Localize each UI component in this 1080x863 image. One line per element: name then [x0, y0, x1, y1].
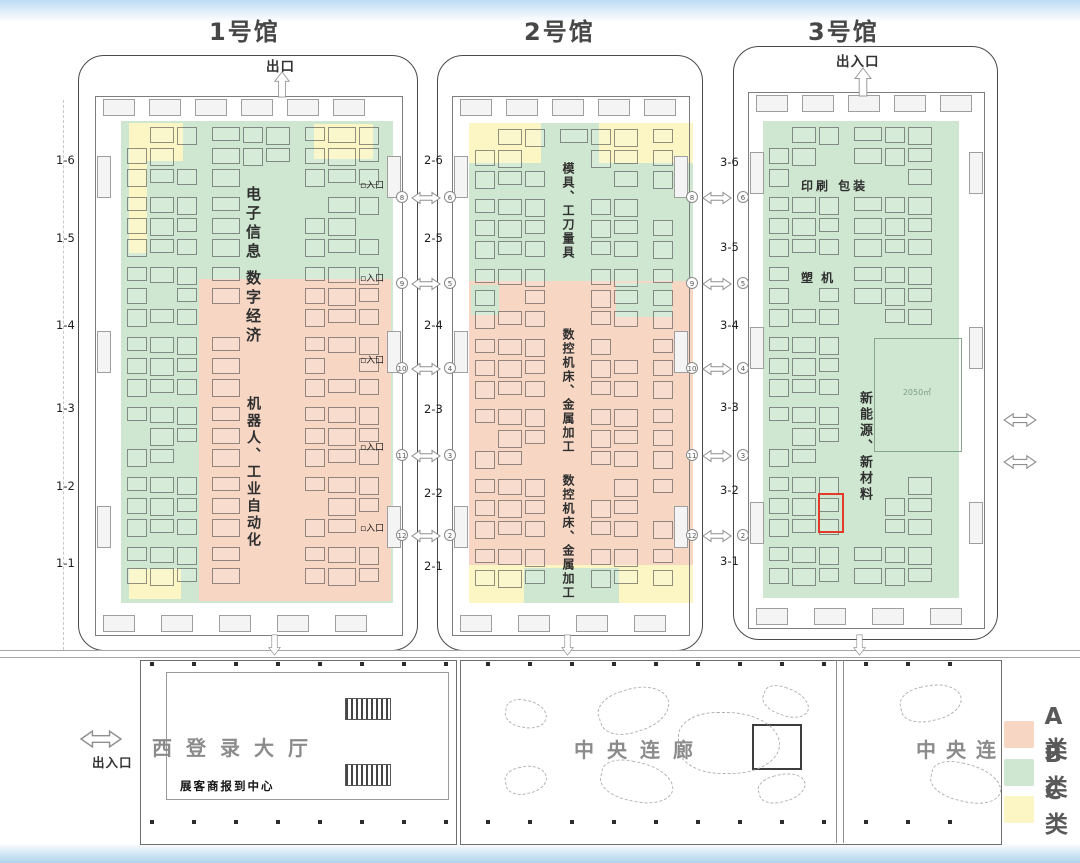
service-room-bottom: [277, 615, 309, 632]
booth-cell: [212, 127, 240, 141]
hall3-zone-label-printing-packaging: 印刷 包装: [801, 177, 868, 194]
booth-cell: [359, 477, 379, 495]
booth-cell: [525, 220, 545, 234]
booth-cell: [305, 267, 325, 281]
booth-cell: [854, 547, 882, 561]
service-room-top: [552, 99, 584, 116]
service-room-bottom: [756, 608, 788, 625]
booth-cell: [614, 451, 638, 467]
booth-cell: [525, 129, 545, 147]
service-room-top: [195, 99, 227, 116]
legend-swatch-c: [1004, 796, 1034, 823]
booth-cell: [475, 339, 495, 353]
booth-cell: [305, 519, 325, 537]
booth-cell: [475, 220, 495, 236]
booth-cell: [908, 547, 932, 565]
booth-cell: [475, 409, 495, 423]
booth-cell: [591, 150, 611, 168]
booth-cell: [819, 127, 839, 145]
booth-cell: [305, 449, 325, 467]
booth-cell: [769, 547, 789, 561]
booth-cell: [614, 150, 638, 164]
column-dot: [402, 662, 406, 666]
column-dot: [528, 820, 532, 824]
stair-block-left: [750, 327, 764, 369]
booth-cell: [475, 290, 495, 306]
column-dot: [318, 820, 322, 824]
double-arrow-icon: [411, 276, 441, 290]
booth-cell: [498, 430, 522, 448]
booth-cell: [614, 549, 638, 567]
booth-cell: [525, 241, 545, 257]
up-arrow-icon: [854, 66, 872, 98]
booth-cell: [359, 379, 379, 395]
booth-cell: [614, 199, 638, 217]
service-room-top: [333, 99, 365, 116]
service-room-top: [756, 95, 788, 112]
stair-block-left: [750, 152, 764, 194]
booth-cell: [591, 241, 611, 255]
gate-number-badge: 6: [737, 191, 749, 203]
booth-cell: [769, 337, 789, 351]
booth-cell: [328, 498, 356, 516]
booth-cell: [127, 568, 147, 584]
hall-row-label: 2-5: [424, 231, 443, 245]
booth-cell: [359, 288, 379, 302]
booth-cell: [591, 129, 611, 145]
column-dot: [402, 820, 406, 824]
booth-cell: [653, 220, 673, 236]
booth-cell: [328, 267, 356, 283]
booth-cell: [212, 358, 240, 374]
stair-block-left: [454, 331, 468, 373]
booth-cell: [498, 269, 522, 285]
booth-cell: [792, 519, 816, 533]
booth-cell: [150, 337, 174, 353]
booth-cell: [177, 547, 197, 565]
gate-number-badge: 12: [396, 529, 408, 541]
column-dot: [192, 662, 196, 666]
highlighted-booth: [818, 493, 844, 533]
booth-cell: [525, 311, 545, 327]
gate-number-badge: 3: [444, 449, 456, 461]
booth-cell: [525, 171, 545, 187]
booth-cell: [150, 498, 174, 516]
booth-cell: [328, 218, 356, 236]
booth-cell: [908, 218, 932, 232]
hall-row-label: 2-2: [424, 486, 443, 500]
road-line-2: [0, 657, 1080, 658]
hall1-title: 1号馆: [209, 12, 280, 47]
booth-cell: [475, 521, 495, 539]
stair-block-left: [454, 506, 468, 548]
booth-cell: [819, 568, 839, 582]
gate-number-badge: 10: [686, 362, 698, 374]
booth-cell: [359, 498, 379, 512]
booth-cell: [525, 570, 545, 584]
booth-cell: [150, 407, 174, 423]
booth-cell: [614, 409, 638, 427]
booth-cell: [359, 239, 379, 255]
booth-cell: [359, 547, 379, 565]
booth-cell: [819, 218, 839, 232]
booth-cell: [498, 199, 522, 215]
gate-number-badge: 6: [444, 191, 456, 203]
booth-cell: [498, 409, 522, 425]
booth-cell: [498, 570, 522, 588]
booth-cell: [498, 150, 522, 168]
booth-cell: [243, 148, 263, 166]
booth-cell: [885, 267, 905, 283]
column-dot: [150, 662, 154, 666]
booth-cell: [591, 311, 611, 325]
booth-cell: [591, 451, 611, 465]
booth-cell: [305, 127, 325, 141]
booth-cell: [177, 428, 197, 442]
booth-cell: [854, 239, 882, 257]
booth-cell: [614, 570, 638, 584]
booth-cell: [359, 568, 379, 582]
booth-cell: [177, 239, 197, 255]
column-dot: [612, 820, 616, 824]
booth-cell: [591, 381, 611, 395]
booth-cell: [854, 288, 882, 304]
booth-cell: [653, 521, 673, 539]
entrance-label: ▫入口: [360, 521, 384, 534]
booth-cell: [769, 288, 789, 304]
booth-cell: [498, 521, 522, 535]
stair-block-left: [750, 502, 764, 544]
booth-cell: [328, 239, 356, 253]
booth-cell: [591, 360, 611, 378]
booth-cell: [819, 337, 839, 355]
booth-cell: [591, 430, 611, 448]
booth-cell: [653, 479, 673, 493]
booth-cell: [792, 568, 816, 586]
booth-cell: [792, 197, 816, 213]
booth-cell: [614, 220, 638, 234]
hall2-zone-label-cnc-2: 数控机床、金属加工: [560, 474, 577, 600]
double-arrow-icon: [411, 190, 441, 204]
booth-cell: [328, 547, 356, 563]
column-dot: [570, 662, 574, 666]
booth-cell: [769, 477, 789, 491]
column-dot: [906, 820, 910, 824]
central-corridor-label: 中央连廊: [574, 734, 706, 763]
stair-block-right: [969, 152, 983, 194]
booth-cell: [305, 309, 325, 327]
service-room-bottom: [460, 615, 492, 632]
booth-cell: [591, 269, 611, 285]
column-dot: [570, 820, 574, 824]
booth-cell: [614, 430, 638, 444]
booth-cell: [591, 549, 611, 565]
booth-cell: [653, 430, 673, 446]
booth-cell: [177, 477, 197, 495]
booth-cell: [212, 379, 240, 397]
booth-cell: [819, 288, 839, 302]
booth-cell: [177, 197, 197, 215]
column-dot: [906, 662, 910, 666]
booth-cell: [177, 169, 197, 185]
booth-cell: [150, 239, 174, 253]
booth-cell: [769, 498, 789, 514]
booth-cell: [792, 239, 816, 253]
gate-number-badge: 8: [396, 191, 408, 203]
booth-cell: [769, 519, 789, 537]
booth-cell: [127, 148, 147, 164]
booth-cell: [305, 358, 325, 374]
column-dot: [234, 820, 238, 824]
hall-row-label: 2-4: [424, 318, 443, 332]
booth-cell: [127, 337, 147, 351]
double-arrow-icon: [411, 448, 441, 462]
booth-cell: [475, 269, 495, 283]
booth-cell: [212, 477, 240, 491]
booth-cell: [854, 148, 882, 164]
booth-cell: [908, 477, 932, 495]
column-dot: [612, 662, 616, 666]
column-dot: [864, 820, 868, 824]
booth-cell: [150, 477, 174, 493]
booth-cell: [498, 339, 522, 355]
hall1-zone-label-electronics: 电子信息: [243, 186, 264, 262]
booth-cell: [127, 519, 147, 537]
corridor-wall-2: [843, 660, 844, 843]
booth-cell: [560, 129, 588, 143]
gate-number-badge: 12: [686, 529, 698, 541]
column-dot: [486, 662, 490, 666]
booth-cell: [359, 407, 379, 425]
booth-cell: [614, 521, 638, 537]
booth-cell: [212, 498, 240, 514]
hall2-zone-label-molds-tools: 模具、工刀量具: [560, 162, 577, 260]
booth-cell: [885, 197, 905, 213]
service-room-top: [103, 99, 135, 116]
booth-cell: [328, 407, 356, 423]
column-dot: [234, 662, 238, 666]
service-room-top: [598, 99, 630, 116]
stair-block-right: [387, 506, 401, 548]
double-arrow-icon: [1003, 454, 1037, 470]
gate-number-badge: 2: [737, 529, 749, 541]
down-arrow-icon: [561, 634, 574, 656]
booth-cell: [127, 407, 147, 421]
booth-cell: [885, 519, 905, 533]
booth-cell: [305, 379, 325, 397]
double-arrow-icon: [66, 729, 136, 749]
west-hall-label: 西登录大厅: [152, 732, 322, 761]
booth-cell: [653, 339, 673, 353]
booth-cell: [653, 241, 673, 259]
service-room-top: [644, 99, 676, 116]
booth-cell: [150, 267, 174, 283]
hall3-zone-label-new-energy: 新能源、新材料: [855, 391, 874, 503]
booth-cell: [177, 519, 197, 535]
booth-cell: [475, 360, 495, 376]
booth-cell: [653, 360, 673, 376]
booth-cell: [359, 309, 379, 325]
booth-cell: [614, 241, 638, 257]
booth-cell: [212, 407, 240, 421]
service-room-bottom: [930, 608, 962, 625]
booth-cell: [328, 127, 356, 143]
booth-cell: [212, 449, 240, 467]
escalator-block-1: [345, 698, 391, 720]
booth-cell: [908, 568, 932, 582]
booth-cell: [769, 239, 789, 257]
booth-cell: [908, 519, 932, 535]
booth-cell: [475, 241, 495, 259]
booth-cell: [127, 239, 147, 257]
column-dot: [654, 662, 658, 666]
column-dot: [780, 662, 784, 666]
booth-cell: [525, 430, 545, 444]
double-arrow-icon: [411, 361, 441, 375]
gate-number-badge: 11: [686, 449, 698, 461]
booth-cell: [328, 568, 356, 586]
hall-row-label: 1-4: [56, 318, 75, 332]
corridor-wall-1: [836, 660, 837, 843]
hall-row-label: 2-1: [424, 559, 443, 573]
booth-cell: [475, 500, 495, 516]
central-corridor-right-label: 中央连: [916, 734, 1006, 763]
booth-cell: [885, 309, 905, 323]
double-arrow-icon: [702, 361, 732, 375]
booth-cell: [498, 500, 522, 518]
column-dot: [486, 820, 490, 824]
booth-cell: [819, 379, 839, 395]
stair-block-left: [97, 506, 111, 548]
booth-cell: [475, 451, 495, 469]
hall-3: 2050㎡ 印刷 包装 塑 机 新能源、新材料: [733, 46, 998, 640]
column-dot: [738, 662, 742, 666]
booth-cell: [475, 549, 495, 563]
booth-cell: [127, 449, 147, 467]
column-dot: [444, 820, 448, 824]
booth-cell: [653, 549, 673, 563]
booth-cell: [614, 129, 638, 147]
booth-cell: [614, 381, 638, 397]
booth-cell: [792, 148, 816, 166]
booth-cell: [819, 358, 839, 372]
service-room-top: [506, 99, 538, 116]
legend-label-c: C类: [1045, 779, 1080, 839]
booth-cell: [819, 239, 839, 255]
booth-cell: [614, 269, 638, 287]
booth-cell: [908, 197, 932, 215]
gate-number-badge: 3: [737, 449, 749, 461]
booth-cell: [475, 381, 495, 399]
service-room-bottom: [872, 608, 904, 625]
booth-cell: [653, 381, 673, 399]
booth-cell: [769, 148, 789, 164]
booth-cell: [653, 129, 673, 143]
column-dot: [822, 662, 826, 666]
booth-cell: [653, 269, 673, 283]
booth-cell: [177, 568, 197, 582]
booth-cell: [769, 358, 789, 374]
booth-cell: [525, 199, 545, 217]
gate-number-badge: 4: [737, 362, 749, 374]
booth-cell: [908, 239, 932, 255]
booth-cell: [177, 267, 197, 285]
booth-cell: [769, 407, 789, 421]
double-arrow-icon: [702, 528, 732, 542]
booth-cell: [885, 218, 905, 236]
booth-cell: [328, 519, 356, 533]
column-dot: [948, 662, 952, 666]
booth-cell: [328, 449, 356, 463]
double-arrow-icon: [702, 448, 732, 462]
column-dot: [150, 820, 154, 824]
entrance-label: ▫入口: [360, 353, 384, 366]
booth-cell: [127, 218, 147, 234]
booth-cell: [614, 171, 638, 187]
service-room-top: [241, 99, 273, 116]
booth-cell: [305, 169, 325, 187]
booth-cell: [305, 239, 325, 257]
entrance-label: ▫入口: [360, 178, 384, 191]
hall3-open-area-size: 2050㎡: [880, 387, 954, 398]
stair-block-right: [969, 502, 983, 544]
booth-cell: [127, 379, 147, 397]
service-room-bottom: [576, 615, 608, 632]
booth-cell: [359, 127, 379, 145]
booth-cell: [792, 127, 816, 143]
booth-cell: [525, 269, 545, 287]
booth-cell: [212, 337, 240, 351]
hall-row-label: 3-3: [720, 400, 739, 414]
booth-cell: [769, 309, 789, 327]
booth-cell: [212, 568, 240, 584]
booth-cell: [885, 547, 905, 563]
booth-cell: [243, 127, 263, 143]
booth-cell: [212, 519, 240, 537]
booth-cell: [614, 479, 638, 497]
double-arrow-icon: [411, 528, 441, 542]
booth-cell: [305, 337, 325, 351]
service-room-top: [287, 99, 319, 116]
booth-cell: [150, 218, 174, 236]
booth-cell: [266, 148, 290, 162]
booth-cell: [792, 477, 816, 493]
booth-cell: [792, 547, 816, 563]
service-room-bottom: [634, 615, 666, 632]
booth-cell: [150, 127, 174, 143]
booth-cell: [792, 449, 816, 463]
down-arrow-icon: [853, 634, 866, 656]
booth-cell: [498, 451, 522, 465]
hall-row-label: 3-6: [720, 155, 739, 169]
column-dot: [276, 662, 280, 666]
booth-cell: [498, 360, 522, 378]
booth-cell: [591, 521, 611, 535]
booth-cell: [614, 311, 638, 327]
booth-cell: [212, 197, 240, 211]
booth-cell: [614, 360, 638, 374]
booth-cell: [525, 521, 545, 537]
booth-cell: [328, 477, 356, 493]
booth-cell: [819, 309, 839, 325]
booth-cell: [150, 197, 174, 213]
booth-cell: [653, 171, 673, 189]
booth-cell: [498, 129, 522, 145]
booth-cell: [819, 197, 839, 215]
checkin-center-label: 展客商报到中心: [180, 778, 275, 794]
booth-cell: [177, 337, 197, 355]
legend-item-c: C类: [1004, 779, 1080, 839]
